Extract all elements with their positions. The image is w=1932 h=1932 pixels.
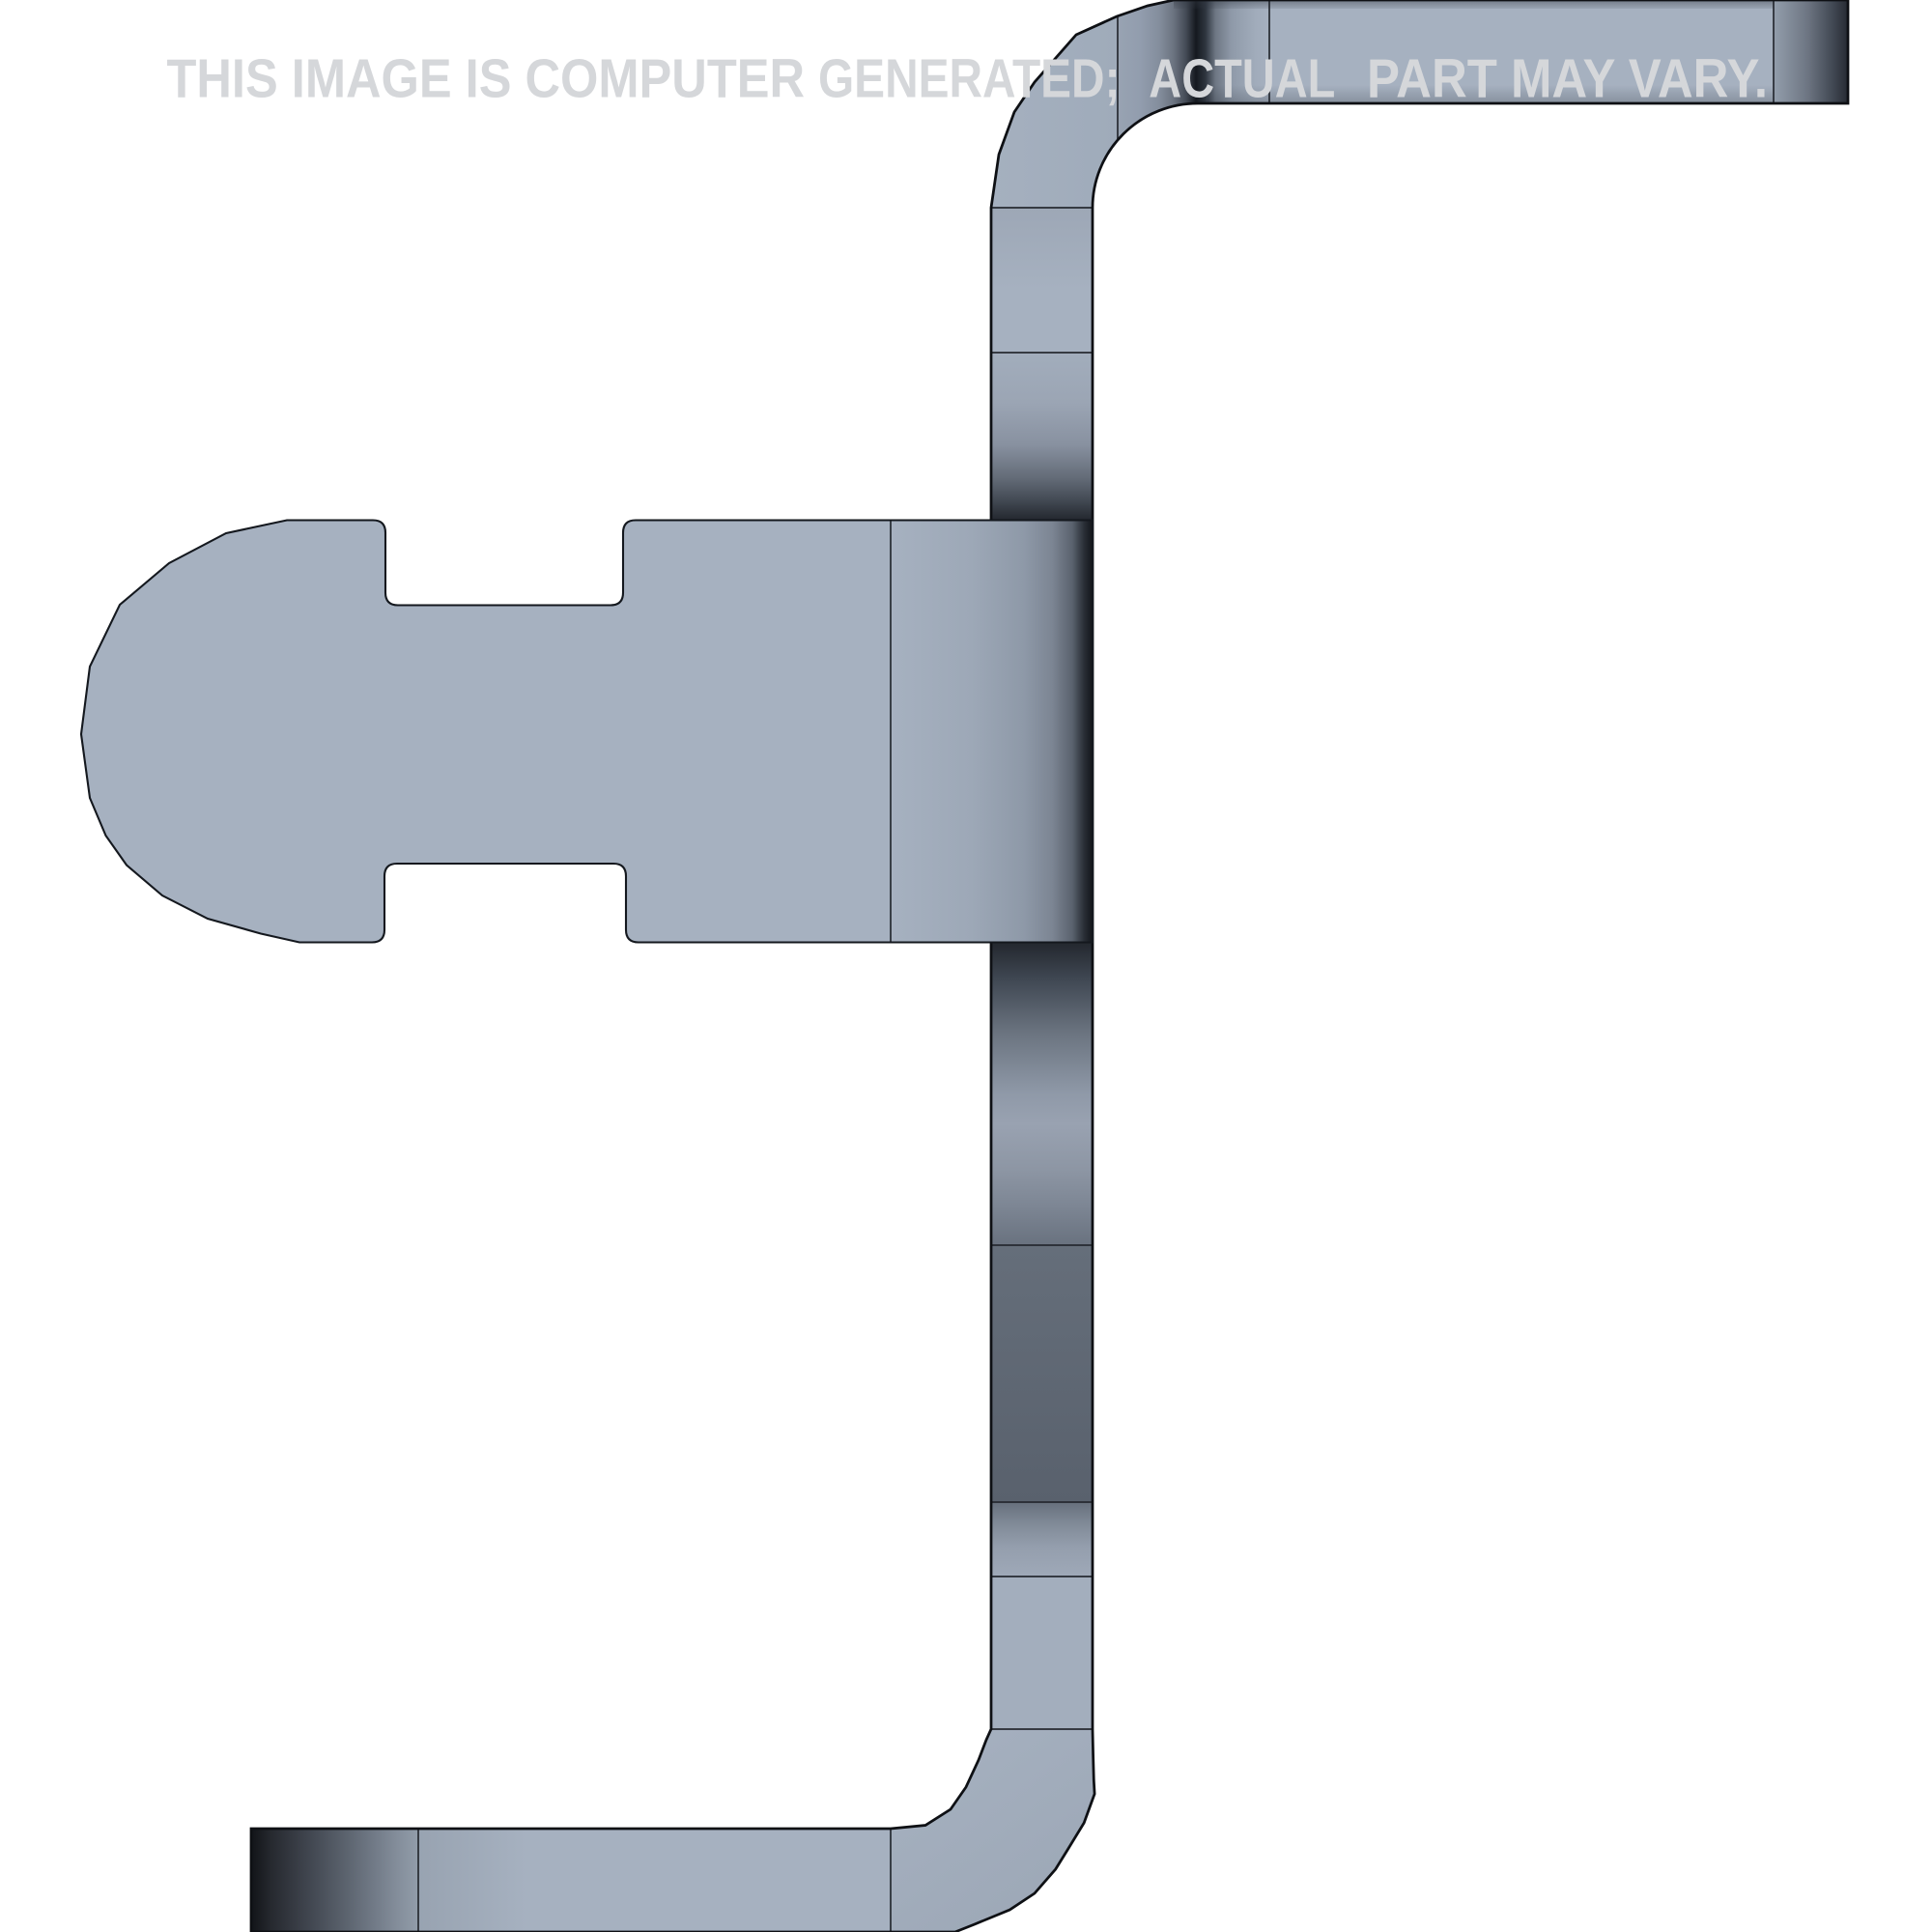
svg-text:GENERATED;: GENERATED; [818,48,1121,110]
svg-text:ACTUAL: ACTUAL [1149,48,1335,110]
svg-text:THIS IMAGE IS COMPUTER: THIS IMAGE IS COMPUTER [167,48,806,110]
svg-text:PART MAY VARY.: PART MAY VARY. [1367,48,1768,110]
